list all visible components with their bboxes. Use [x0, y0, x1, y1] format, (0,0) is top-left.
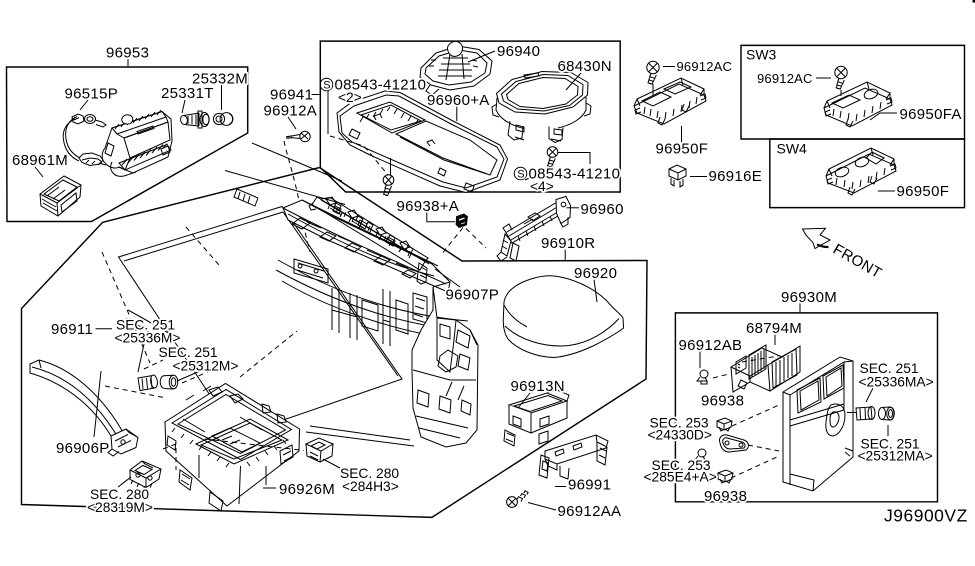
- svg-text:96930M: 96930M: [781, 289, 837, 306]
- svg-text:96953: 96953: [106, 45, 149, 62]
- svg-text:SW4: SW4: [777, 141, 808, 157]
- svg-text:96950F: 96950F: [656, 141, 709, 158]
- svg-text:25331T: 25331T: [161, 85, 214, 102]
- svg-text:96912AC: 96912AC: [757, 71, 813, 86]
- svg-text:96938: 96938: [701, 392, 744, 409]
- svg-text:96950F: 96950F: [897, 183, 950, 200]
- svg-text:96913N: 96913N: [511, 378, 565, 395]
- svg-text:<28319M>: <28319M>: [87, 500, 153, 515]
- svg-text:96960+A: 96960+A: [427, 92, 490, 109]
- svg-text:96912AA: 96912AA: [558, 503, 622, 520]
- svg-text:25332M: 25332M: [192, 71, 248, 88]
- svg-text:96940: 96940: [497, 43, 540, 60]
- svg-text:96910R: 96910R: [541, 235, 595, 252]
- svg-text:96916E: 96916E: [709, 168, 763, 185]
- svg-text:96912AC: 96912AC: [677, 59, 733, 74]
- svg-text:96926M: 96926M: [279, 481, 335, 498]
- svg-text:96912AB: 96912AB: [679, 337, 743, 354]
- svg-text:68430N: 68430N: [558, 58, 612, 75]
- svg-text:96920: 96920: [574, 265, 617, 282]
- svg-text:68794M: 68794M: [746, 320, 802, 337]
- svg-text:96950FA: 96950FA: [900, 106, 962, 123]
- svg-text:68961M: 68961M: [12, 152, 68, 169]
- svg-text:<4>: <4>: [530, 179, 554, 194]
- svg-text:S: S: [517, 169, 524, 181]
- svg-text:96991: 96991: [568, 477, 611, 494]
- svg-text:SW3: SW3: [746, 46, 777, 62]
- svg-text:S: S: [323, 80, 330, 92]
- svg-text:<285E4+A>: <285E4+A>: [644, 470, 717, 485]
- svg-text:96941: 96941: [270, 87, 313, 104]
- svg-text:<2>: <2>: [338, 90, 362, 105]
- svg-text:96912A: 96912A: [264, 103, 318, 120]
- svg-text:<284H3>: <284H3>: [342, 479, 399, 494]
- svg-text:96911: 96911: [51, 321, 93, 338]
- svg-text:96938+A: 96938+A: [397, 198, 460, 215]
- svg-text:J96900VZ: J96900VZ: [884, 506, 968, 526]
- svg-text:96515P: 96515P: [65, 86, 119, 103]
- svg-text:96938: 96938: [704, 488, 747, 505]
- svg-text:<25312MA>: <25312MA>: [858, 448, 933, 463]
- svg-text:<25336MA>: <25336MA>: [859, 374, 934, 389]
- svg-text:96907P: 96907P: [446, 286, 500, 303]
- svg-text:96960: 96960: [581, 201, 624, 218]
- svg-text:<25312M>: <25312M>: [173, 358, 239, 373]
- svg-text:<24330D>: <24330D>: [648, 428, 712, 443]
- svg-text:96906P: 96906P: [56, 440, 110, 457]
- svg-text:<25336M>: <25336M>: [115, 331, 181, 346]
